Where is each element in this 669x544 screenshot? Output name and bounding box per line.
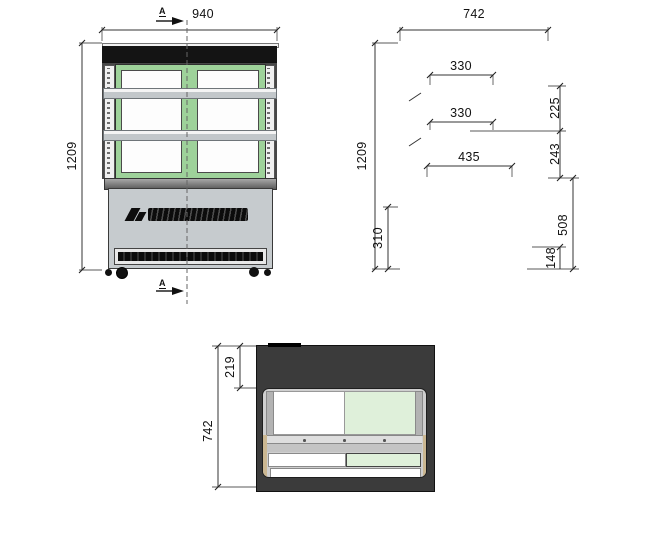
dim-front-height: 1209 — [65, 139, 79, 173]
plan-opening — [262, 388, 427, 478]
front-shelf-bar-1 — [103, 88, 277, 99]
plan-glass-pane-right — [344, 391, 420, 435]
brand-logo-text — [148, 208, 248, 221]
front-base-panel — [108, 188, 273, 269]
plan-tan-strip-left — [263, 435, 267, 477]
dim-shelf-top-depth: 330 — [444, 59, 478, 73]
dim-gap-upper: 225 — [548, 91, 562, 125]
rail-holes-left — [107, 68, 110, 174]
dim-front-width: 940 — [186, 7, 220, 21]
plan-tan-strip-right — [423, 435, 427, 477]
ventilation-grille — [114, 248, 267, 265]
caster-wheel — [116, 267, 128, 279]
plan-bottom-row — [270, 468, 421, 478]
display-door-left-glass — [121, 70, 182, 173]
plan-track-right — [415, 391, 423, 436]
plan-shelf-row-left — [268, 453, 346, 467]
dim-plan-depth: 742 — [201, 414, 215, 448]
front-display-section — [102, 62, 277, 179]
door-field — [115, 64, 266, 179]
grille-slats — [118, 252, 263, 261]
dim-gap-lower: 243 — [548, 137, 562, 171]
technical-drawing-canvas: 940 1209 A A 742 1209 330 330 435 225 24… — [0, 0, 669, 544]
plan-counter-band-2 — [265, 443, 422, 452]
section-label-top: A — [159, 6, 166, 17]
dim-caster-height: 148 — [544, 241, 558, 275]
caster-wheel — [105, 269, 112, 276]
dim-base-height: 508 — [556, 208, 570, 242]
fastener-dot — [343, 439, 346, 442]
plan-glass-pane-left — [272, 391, 346, 435]
brand-logo — [128, 206, 250, 224]
dim-machine-height: 310 — [371, 221, 385, 255]
display-door-right-glass — [197, 70, 259, 173]
fastener-dot — [383, 439, 386, 442]
plan-hinge-tab — [268, 343, 301, 347]
front-canopy-black — [102, 46, 277, 62]
dim-side-height: 1209 — [355, 139, 369, 173]
caster-wheel — [249, 267, 259, 277]
side-view — [330, 0, 669, 310]
plan-shelf-row-right — [346, 453, 421, 467]
section-label-bottom: A — [159, 278, 166, 289]
front-view — [0, 0, 330, 310]
caster-wheel — [264, 269, 271, 276]
dim-deck-depth: 435 — [452, 150, 486, 164]
shelf-rail-left — [104, 65, 115, 179]
plan-body — [256, 345, 435, 492]
dim-plan-inset: 219 — [223, 350, 237, 384]
front-shelf-bar-2 — [103, 130, 277, 141]
dim-shelf-mid-depth: 330 — [444, 106, 478, 120]
dim-side-width: 742 — [457, 7, 491, 21]
plan-track-left — [266, 391, 274, 436]
rail-holes-right — [267, 68, 270, 174]
fastener-dot — [303, 439, 306, 442]
